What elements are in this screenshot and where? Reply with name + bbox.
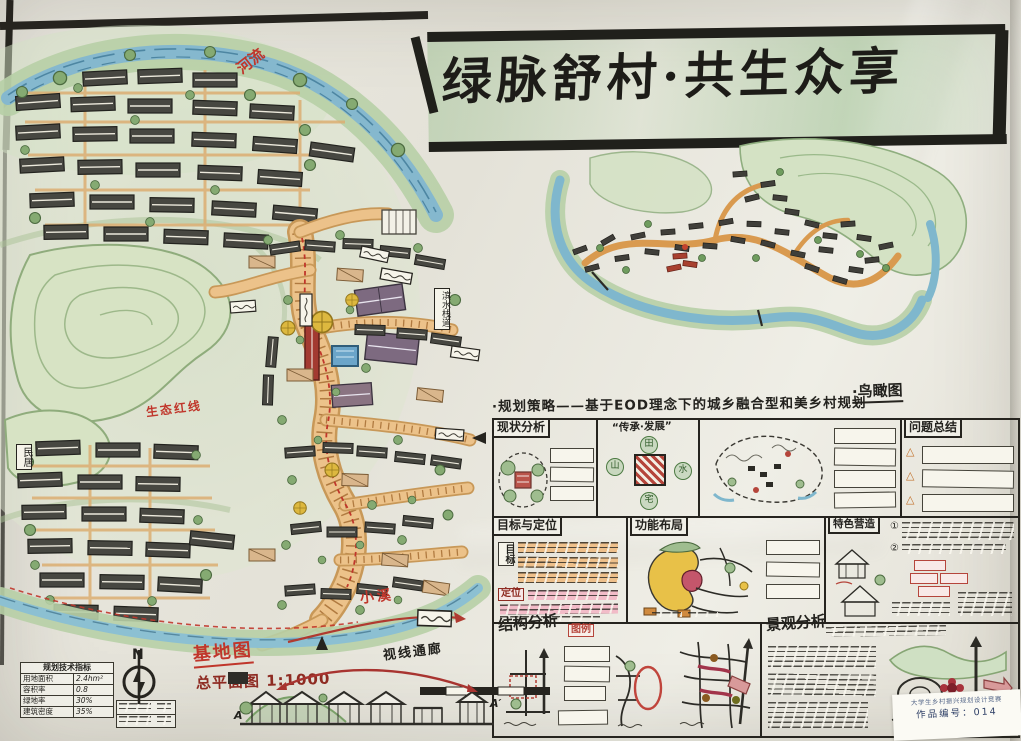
handwritten-note xyxy=(766,540,820,555)
goal-line xyxy=(518,542,618,553)
handwritten-note xyxy=(768,646,876,668)
element-water: 水 xyxy=(674,462,692,480)
handwritten-note xyxy=(157,716,171,725)
table-row: 容积率 0.8 xyxy=(21,685,113,696)
handwritten-note xyxy=(834,447,896,466)
row-label: 绿地率 xyxy=(21,696,74,706)
sticker-competition-name: 大学生乡村振兴规划设计竞赛 xyxy=(892,695,1020,707)
sticker-entry-number: 作品编号：014 xyxy=(893,706,1021,722)
handwritten-note xyxy=(902,544,1006,554)
handwritten-note xyxy=(922,469,1014,489)
handwritten-note xyxy=(558,710,608,726)
legend-tag: 图例 xyxy=(568,624,594,637)
panel-feature-making: 特色营造 ① ② xyxy=(824,516,1020,624)
position-line xyxy=(500,603,618,614)
handwritten-note xyxy=(922,446,1014,464)
stream xyxy=(0,585,478,643)
panel-functional-layout: 功能布局 xyxy=(626,516,826,624)
element-mountain: 山 xyxy=(606,458,624,476)
handwritten-note xyxy=(768,702,868,728)
stream-label: 小溪 xyxy=(359,588,394,606)
row-value: 35% xyxy=(74,707,113,717)
row-value: 0.8 xyxy=(74,685,113,695)
circled-number-2: ② xyxy=(890,544,899,555)
row-value: 2.4hm² xyxy=(74,674,113,684)
section-mark-a-prime: A′ xyxy=(490,698,501,710)
sight-line-arrow xyxy=(276,670,478,692)
panel-title: 特色营造 xyxy=(828,516,880,534)
road-structure-diagram-2 xyxy=(610,642,670,732)
warning-triangle: △ xyxy=(906,470,914,482)
presentation-board: 河流 生态红线 小溪 滨水栈道 民居 绿脉舒村·共生众享 xyxy=(0,0,1021,741)
handwritten-note xyxy=(834,470,896,488)
row-value: 30% xyxy=(74,696,113,706)
red-word-tag xyxy=(918,586,950,597)
handwritten-note xyxy=(119,716,151,725)
handwritten-note xyxy=(550,448,594,463)
quote-title: “传承·发展” xyxy=(612,421,672,434)
element-field: 田 xyxy=(640,436,658,454)
element-house: 宅 xyxy=(640,492,658,510)
table-row: 绿地率 30% xyxy=(21,696,113,707)
location-diagram xyxy=(496,444,550,512)
panel-title: 景观分析 xyxy=(766,614,827,634)
panel-heritage-elements: “传承·发展” 山 田 水 宅 xyxy=(596,418,700,518)
handwritten-note xyxy=(564,686,606,701)
masterplan-drawing xyxy=(0,0,500,665)
house-sketch xyxy=(830,540,888,618)
handwritten-note xyxy=(834,428,896,444)
section-mark-a: A xyxy=(234,710,243,722)
indicator-table: 规划技术指标 用地面积 2.4hm² 容积率 0.8 绿地率 30% 建筑密度 … xyxy=(20,662,114,718)
birdseye-drawing xyxy=(530,128,1000,398)
section-elevation xyxy=(226,650,502,741)
panel-title: 现状分析 xyxy=(492,418,550,438)
indicator-table-header: 规划技术指标 xyxy=(21,663,113,674)
table-row: 建筑密度 35% xyxy=(21,707,113,717)
circled-number-1: ① xyxy=(890,522,899,533)
layout-blob-map xyxy=(634,538,760,618)
goal-line xyxy=(518,557,618,569)
panel-title: 功能布局 xyxy=(630,516,688,536)
handwritten-note xyxy=(902,522,1014,540)
row-label: 建筑密度 xyxy=(21,707,74,717)
road-structure-diagram-3 xyxy=(674,632,758,734)
handwritten-note xyxy=(550,467,594,483)
handwritten-note xyxy=(564,666,610,683)
strategy-header: ·规划策略——基于EOD理念下的城乡融合型和美乡村规划 xyxy=(492,396,867,414)
panel-title: 目标与定位 xyxy=(492,516,562,536)
panel-problem-summary: 问题总结 △ △ △ xyxy=(900,418,1020,518)
panel-title: 问题总结 xyxy=(904,418,962,438)
handwritten-note xyxy=(652,612,682,617)
competition-sticker: 大学生乡村振兴规划设计竞赛 作品编号：014 xyxy=(892,689,1021,741)
divider xyxy=(117,714,175,715)
residence-label: 民居 xyxy=(16,444,32,470)
position-line xyxy=(528,590,618,600)
handwritten-note xyxy=(892,602,950,616)
handwritten-note xyxy=(564,646,610,662)
handwritten-note xyxy=(766,562,820,578)
pool xyxy=(332,346,358,366)
site-sketch xyxy=(702,424,830,510)
goal-line xyxy=(518,572,618,583)
handwritten-note xyxy=(766,584,820,599)
board-title: 绿脉舒村·共生众享 xyxy=(441,45,906,109)
panel-title: 结构分析 xyxy=(497,613,558,634)
panel-structure-analysis: 结构分析 图例 xyxy=(492,622,762,738)
handwritten-note xyxy=(688,612,718,617)
table-row: 用地面积 2.4hm² xyxy=(21,674,113,685)
handwritten-note xyxy=(958,592,1012,616)
red-word-tag xyxy=(914,560,946,571)
panel-site-sketch xyxy=(698,418,902,518)
row-label: 容积率 xyxy=(21,685,74,695)
row-label: 用地面积 xyxy=(21,674,74,684)
red-word-tag xyxy=(910,573,938,584)
handwritten-note xyxy=(922,494,1014,512)
red-word-tag xyxy=(940,573,968,584)
boardwalk-label: 滨水栈道 xyxy=(434,288,450,330)
handwritten-note xyxy=(550,486,594,501)
handwritten-note xyxy=(834,491,896,508)
goal-tag: 目标 xyxy=(498,542,514,566)
warning-triangle: △ xyxy=(906,494,914,506)
site-hatch-square xyxy=(634,454,666,486)
handwritten-note xyxy=(768,674,876,697)
warning-triangle: △ xyxy=(906,446,914,458)
panel-status-analysis: 现状分析 xyxy=(492,418,598,518)
panel-goal-positioning: 目标与定位 目标 定位 xyxy=(492,516,628,624)
north-letter: N xyxy=(132,648,144,663)
parking-lot xyxy=(382,210,416,234)
position-tag: 定位 xyxy=(498,588,524,601)
